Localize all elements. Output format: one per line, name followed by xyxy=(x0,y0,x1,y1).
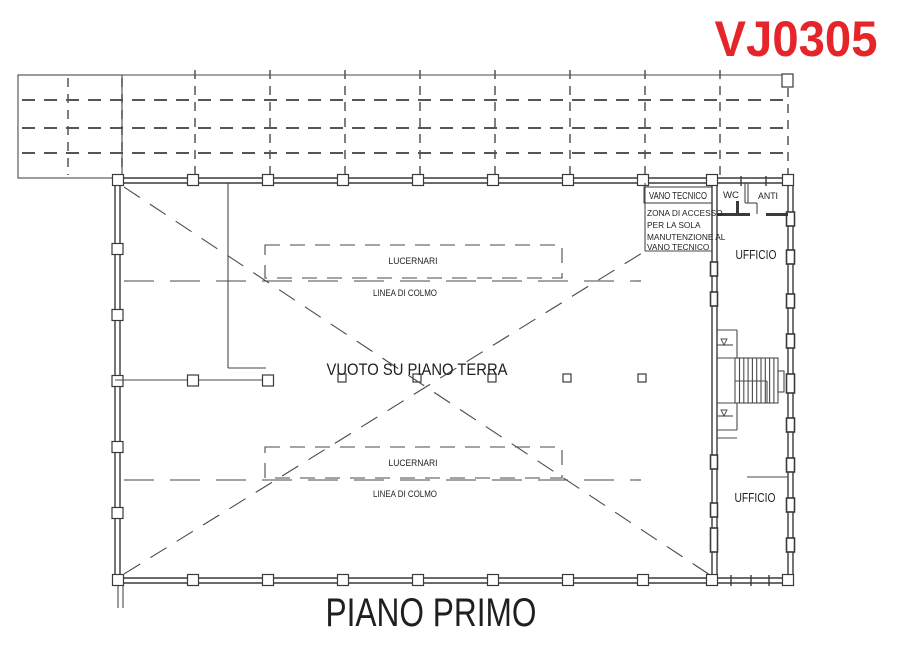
left-annex-block xyxy=(18,75,122,178)
skylight-band-bottom xyxy=(124,447,641,480)
office-bottom-label: UFFICIO xyxy=(735,491,776,505)
access-zone-line4: VANO TECNICO xyxy=(647,242,710,252)
page-title: PIANO PRIMO xyxy=(326,591,537,635)
tech-room-label: VANO TECNICO xyxy=(649,191,707,202)
ridge-top-label: LINEA DI COLMO xyxy=(373,288,437,298)
interior-partition xyxy=(115,183,274,386)
door-swing-icon xyxy=(721,339,727,345)
access-zone-line2: PER LA SOLA xyxy=(647,220,701,230)
stairwell xyxy=(717,330,788,477)
anteroom-label: ANTI xyxy=(758,191,778,201)
canopy-grid xyxy=(18,70,793,176)
access-zone-line3: MANUTENZIONE AL xyxy=(647,232,726,242)
ridge-bottom-label: LINEA DI COLMO xyxy=(373,489,437,499)
skylight-top-label: LUCERNARI xyxy=(389,256,438,266)
wc-label: WC xyxy=(723,190,740,200)
right-wall-windows xyxy=(787,212,795,552)
skylight-bottom-label: LUCERNARI xyxy=(389,458,438,468)
door-swing-icon xyxy=(721,410,727,416)
floor-plan-page: VJ0305 VUOTO SU PIANO TERRA LUCERNARI LI… xyxy=(0,0,905,658)
canopy-corner-column xyxy=(782,74,793,87)
void-label: VUOTO SU PIANO TERRA xyxy=(327,361,508,379)
office-top-label: UFFICIO xyxy=(736,248,777,262)
skylight-band-top xyxy=(124,245,641,281)
access-zone-line1: ZONA DI ACCESSO xyxy=(647,208,723,218)
code-label: VJ0305 xyxy=(715,11,878,67)
floor-plan-svg: VJ0305 VUOTO SU PIANO TERRA LUCERNARI LI… xyxy=(0,0,905,658)
